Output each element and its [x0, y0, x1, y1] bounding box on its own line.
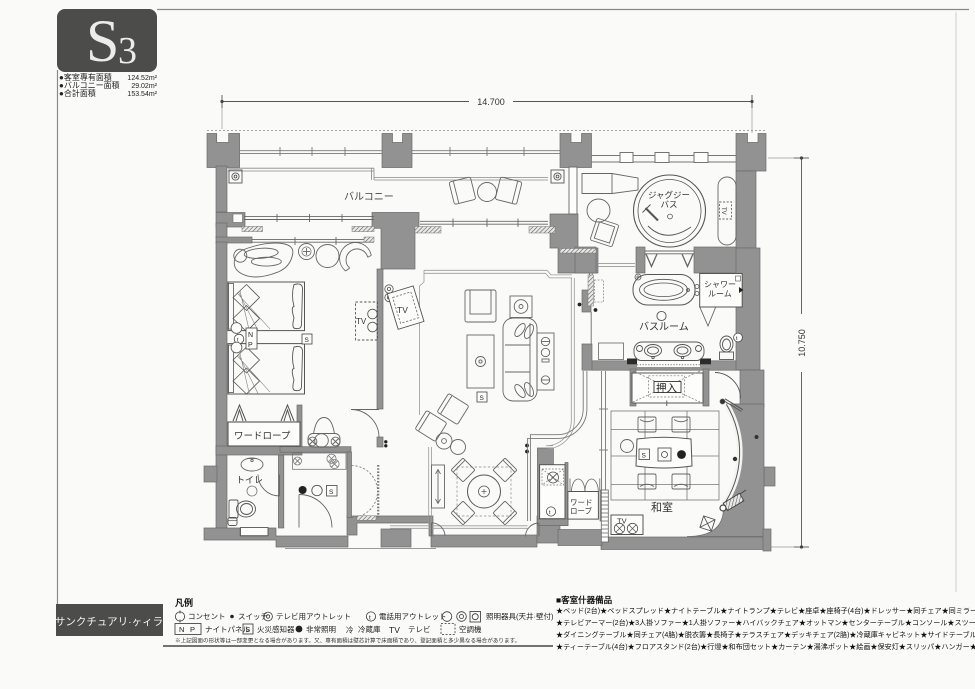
svg-text:●合計面積: ●合計面積 — [59, 88, 96, 98]
svg-text:バスルーム: バスルーム — [639, 321, 689, 333]
svg-text:★ダイニングテーブル★同チェア(4胳)★脱衣籌★長椅子★テラ: ★ダイニングテーブル★同チェア(4胳)★脱衣籌★長椅子★テラスチェア★デッキチェ… — [556, 630, 975, 639]
svg-text:153.54m²: 153.54m² — [127, 91, 157, 98]
svg-text:ワードロープ: ワードロープ — [234, 431, 291, 442]
svg-text:シャワー: シャワー — [704, 280, 736, 289]
svg-text:N: N — [248, 332, 253, 339]
svg-text:124.52m²: 124.52m² — [127, 75, 157, 82]
svg-text:P: P — [190, 625, 195, 634]
svg-text:バス: バス — [660, 200, 677, 210]
svg-text:P: P — [248, 342, 253, 349]
svg-text:ジャグジー: ジャグジー — [648, 190, 690, 200]
svg-text:※上記図面の形状等は一部変更となる場合があります。又、専有面: ※上記図面の形状等は一部変更となる場合があります。又、専有面積は壁芯計算で床面積… — [175, 637, 520, 645]
svg-text:S: S — [305, 337, 310, 344]
svg-text:非常照明: 非常照明 — [306, 624, 336, 634]
svg-text:冷蔵庫: 冷蔵庫 — [358, 624, 381, 634]
svg-text:N: N — [179, 625, 184, 634]
svg-text:TV: TV — [356, 317, 367, 326]
svg-text:S: S — [480, 395, 485, 402]
svg-text:29.02m²: 29.02m² — [131, 83, 157, 90]
svg-text:電話用アウトレット: 電話用アウトレット — [379, 611, 447, 621]
svg-text:和室: 和室 — [651, 500, 673, 514]
svg-text:■客室什器備品: ■客室什器備品 — [556, 595, 613, 605]
svg-text:TV: TV — [389, 625, 400, 635]
svg-text:ローブ: ローブ — [570, 506, 593, 516]
svg-text:S: S — [329, 489, 334, 496]
svg-text:サンクチュアリ·ヶィラ: サンクチュアリ·ヶィラ — [55, 616, 163, 628]
svg-text:★テレビアーマー(2台)★3人掛ソファー★1人掛ソファー★ハ: ★テレビアーマー(2台)★3人掛ソファー★1人掛ソファー★ハイバックチェア★オッ… — [556, 618, 975, 627]
svg-text:照明器具(天井·壁付): 照明器具(天井·壁付) — [486, 611, 554, 621]
svg-text:14.700: 14.700 — [477, 97, 505, 107]
svg-text:冷: 冷 — [346, 625, 354, 635]
svg-text:火災感知器: 火災感知器 — [257, 624, 295, 634]
svg-text:TV: TV — [397, 305, 408, 315]
svg-text:TV: TV — [720, 207, 726, 215]
svg-text:押入: 押入 — [656, 382, 677, 395]
svg-text:コンセント: コンセント — [188, 612, 226, 621]
svg-text:テレビ: テレビ — [408, 625, 431, 634]
svg-text:3: 3 — [118, 30, 137, 72]
svg-text:★ベッド(2台)★ベッドスプレッド★ナイトテーブル★ナイトラ: ★ベッド(2台)★ベッドスプレッド★ナイトテーブル★ナイトランプ★テレビ★座卓★… — [556, 606, 975, 615]
svg-text:凡例: 凡例 — [174, 597, 193, 608]
svg-text:10.750: 10.750 — [797, 329, 807, 357]
svg-text:ルーム: ルーム — [708, 290, 732, 299]
svg-text:S: S — [246, 627, 251, 634]
svg-text:S: S — [86, 8, 119, 74]
svg-text:バルコニー: バルコニー — [344, 191, 394, 203]
svg-text:t: t — [369, 615, 371, 622]
svg-text:ナイトパネル: ナイトパネル — [205, 625, 250, 634]
svg-text:S: S — [642, 453, 647, 460]
svg-text:★ティーテーブル(4台)★フロアスタンド(2台)★行燈★和布: ★ティーテーブル(4台)★フロアスタンド(2台)★行燈★和布団セット★カーテン★… — [556, 642, 975, 651]
svg-text:空調機: 空調機 — [459, 624, 482, 634]
svg-text:テレビ用アウトレット: テレビ用アウトレット — [276, 612, 351, 621]
